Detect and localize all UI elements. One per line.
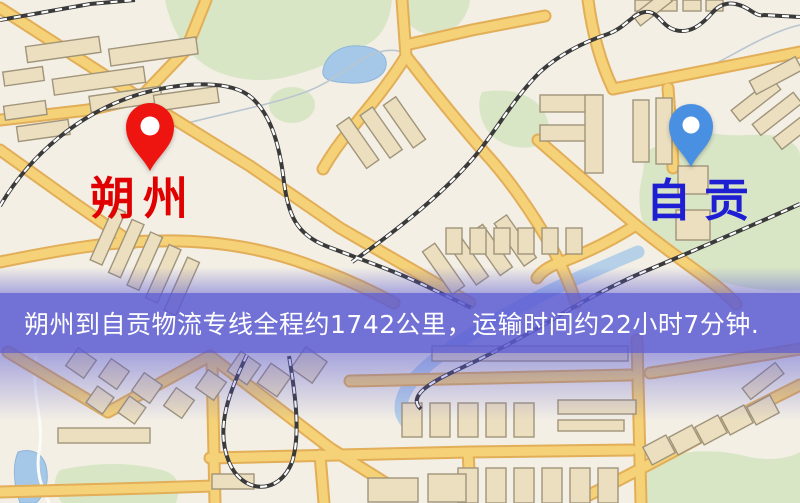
destination-location-pin-icon[interactable] [664,103,718,169]
route-info-banner: 朔州到自贡物流专线全程约1742公里，运输时间约22小时7分钟. [0,293,800,353]
map-canvas [0,0,800,503]
destination-pin-hole [683,117,700,134]
map-screenshot: 朔州 自贡 朔州到自贡物流专线全程约1742公里，运输时间约22小时7分钟. [0,0,800,503]
origin-pin-hole [141,117,160,136]
destination-pin-shape [669,104,713,167]
origin-city-label: 朔州 [90,176,196,221]
destination-city-label: 自贡 [646,178,762,223]
origin-pin-shape [126,103,174,171]
route-info-text: 朔州到自贡物流专线全程约1742公里，运输时间约22小时7分钟. [0,305,759,341]
origin-location-pin-icon[interactable] [120,101,180,173]
